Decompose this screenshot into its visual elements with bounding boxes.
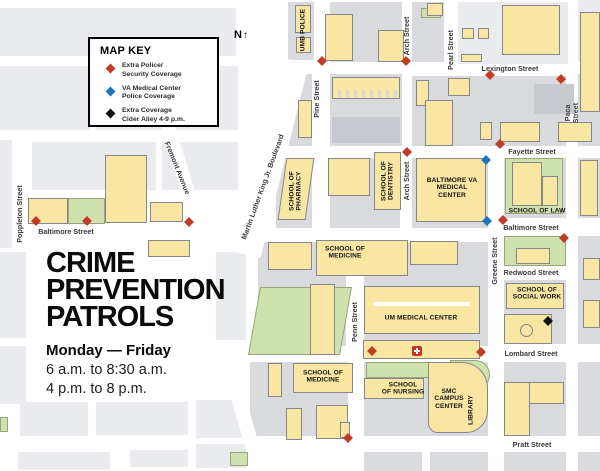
street-label-redwood-street: Redwood Street: [504, 269, 559, 277]
building: [310, 284, 335, 355]
green-space: [230, 452, 248, 466]
street-label-pine-street: Pine Street: [313, 80, 321, 118]
map-key-items: Extra Police/ Security CoverageVA Medica…: [100, 62, 217, 125]
street-label-baltimore-street-west: Baltimore Street: [38, 228, 94, 236]
building: [502, 5, 560, 55]
street-label-penn-street: Penn Street: [351, 302, 359, 342]
green-space: [0, 417, 8, 432]
green-space: [248, 287, 352, 355]
building-label-school-of-medicine-north: SCHOOL OF MEDICINE: [325, 246, 365, 261]
street-label-arch-street-north: Arch Street: [403, 17, 411, 56]
city-block: [364, 452, 422, 471]
street-label-greene-street: Greene Street: [491, 237, 499, 284]
building: [268, 242, 312, 270]
street-label-lombard-street: Lombard Street: [504, 350, 557, 358]
building: [448, 78, 470, 96]
building: [516, 248, 550, 264]
building: [461, 54, 482, 62]
building: [328, 158, 370, 196]
legend-va-police-label: VA Medical Center Police Coverage: [122, 85, 181, 103]
building: [425, 100, 453, 146]
legend-va-police-icon: [106, 86, 116, 96]
building: [378, 30, 404, 62]
building: [298, 100, 312, 138]
city-block: [578, 452, 600, 471]
building-label-school-of-medicine-south: SCHOOL OF MEDICINE: [303, 370, 343, 385]
building: [462, 28, 474, 39]
building: [583, 258, 600, 280]
building-label-smc-campus-center: SMC CAMPUS CENTER: [434, 388, 463, 410]
building-detail: [374, 302, 470, 306]
marker-extra-police-icon: [402, 147, 412, 157]
city-block: [130, 450, 188, 467]
city-block: [18, 452, 110, 470]
map-key-box: MAP KEY Extra Police/ Security CoverageV…: [88, 37, 219, 127]
street-label-fayette-street: Fayette Street: [508, 148, 556, 156]
building: [500, 122, 540, 142]
building: [542, 176, 558, 206]
street-label-arch-street-mid: Arch Street: [403, 162, 411, 201]
building-label-school-of-social-work: SCHOOL OF SOCIAL WORK: [513, 287, 562, 302]
north-arrow-icon: ↑: [243, 30, 248, 41]
map-key-title: MAP KEY: [100, 45, 217, 57]
building-label-school-of-dentistry: SCHOOL OF DENTISTRY: [381, 161, 396, 201]
courtyard-circle-icon: [520, 324, 533, 337]
building-label-library: LIBRARY: [467, 395, 474, 425]
building: [583, 300, 600, 328]
north-arrow: N↑: [234, 25, 248, 43]
building: [105, 155, 147, 223]
city-block: [0, 252, 26, 338]
building: [478, 28, 489, 39]
schedule-morning: 6 a.m. to 8:30 a.m.: [46, 362, 225, 378]
legend-cider-alley-label: Extra Coverage Cider Alley 4-9 p.m.: [122, 107, 185, 125]
building: [580, 160, 598, 216]
building: [410, 241, 458, 265]
building-label-school-of-pharmacy: SCHOOL OF PHARMACY: [289, 171, 304, 211]
building: [332, 77, 400, 99]
hospital-cross-icon: [412, 346, 422, 356]
city-block: [0, 140, 12, 248]
building: [268, 363, 282, 397]
building-label-um-medical-center: UM MEDICAL CENTER: [385, 314, 458, 321]
map-key-item-cider-alley: Extra Coverage Cider Alley 4-9 p.m.: [100, 107, 217, 125]
building: [512, 162, 542, 206]
street-label-poppleton-street: Poppleton Street: [16, 185, 24, 243]
building: [427, 3, 443, 16]
city-block: [430, 452, 488, 471]
map-key-item-va-police: VA Medical Center Police Coverage: [100, 85, 217, 103]
street-label-pearl-street: Pearl Street: [447, 30, 455, 70]
street-label-baltimore-street-east: Baltimore Street: [503, 224, 559, 232]
city-block: [578, 362, 600, 436]
city-block: [0, 346, 26, 404]
map-key-item-extra-police: Extra Police/ Security Coverage: [100, 62, 217, 80]
marker-extra-police-icon: [343, 433, 353, 443]
title-block: CRIME PREVENTION PATROLS Monday — Friday…: [46, 250, 225, 397]
schedule-evening: 4 p.m. to 8 p.m.: [46, 381, 225, 397]
city-block: [0, 66, 90, 130]
north-label: N: [234, 29, 242, 41]
city-block: [504, 452, 566, 471]
legend-extra-police-label: Extra Police/ Security Coverage: [122, 62, 182, 80]
building: [325, 14, 353, 61]
campus-map: MAP KEY Extra Police/ Security CoverageV…: [0, 0, 600, 471]
building-label-school-of-law: SCHOOL OF LAW: [509, 207, 566, 214]
building: [286, 408, 302, 440]
schedule-days: Monday — Friday: [46, 342, 225, 359]
building: [480, 122, 492, 140]
street-label-pratt-street: Pratt Street: [513, 441, 552, 449]
street-label-paca-street: Paca Street: [564, 99, 580, 127]
city-block: [20, 402, 88, 436]
page-title-line1: CRIME: [46, 250, 225, 277]
green-space: [366, 362, 436, 378]
legend-cider-alley-icon: [106, 109, 116, 119]
page-title-line3: PATROLS: [46, 304, 225, 331]
page-title-line2: PREVENTION: [46, 277, 225, 304]
marker-extra-police-icon: [401, 56, 411, 66]
legend-extra-police-icon: [106, 64, 116, 74]
building: [364, 286, 480, 334]
building: [504, 382, 530, 436]
city-block: [96, 402, 188, 435]
building-label-baltimore-va-medical-center: BALTIMORE VA MEDICAL CENTER: [427, 177, 477, 199]
building: [150, 202, 183, 222]
gray-building: [332, 117, 400, 143]
building-label-school-of-nursing: SCHOOL OF NURSING: [382, 382, 424, 397]
building: [580, 12, 600, 112]
building-label-umb-police: UMB POLICE: [299, 9, 306, 51]
